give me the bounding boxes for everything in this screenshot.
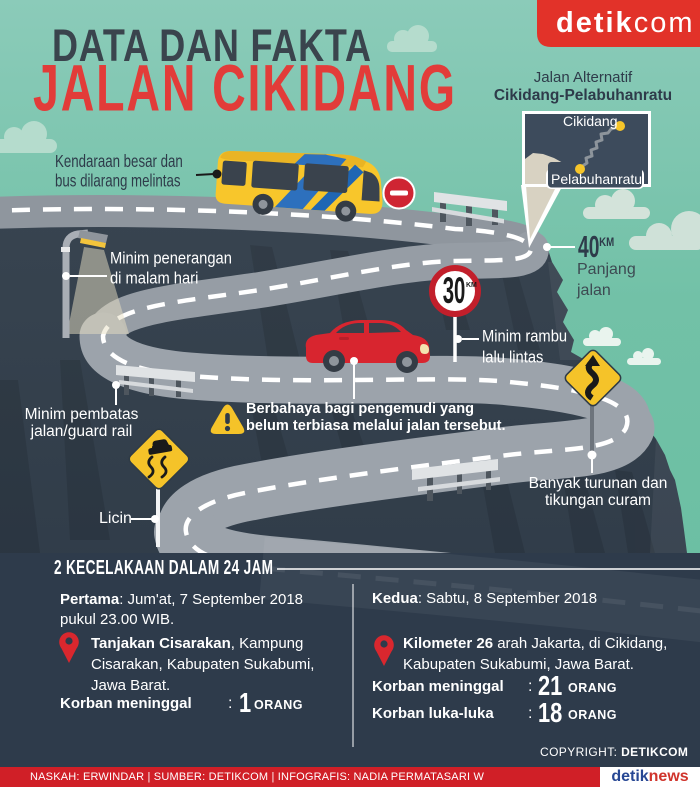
svg-text:30: 30 <box>443 271 466 312</box>
svg-text:KM: KM <box>466 282 477 289</box>
